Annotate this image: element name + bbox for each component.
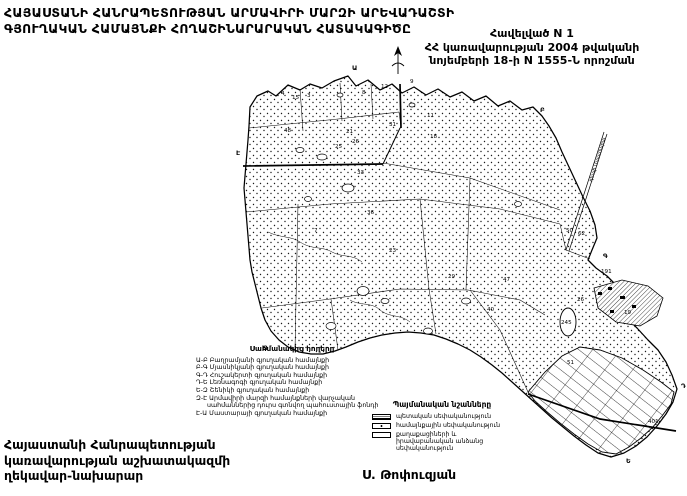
signer-name: Ս. Թոփուզյան [362, 467, 456, 482]
boundary-letter: Ա [352, 64, 357, 72]
boundary-letter: Ե [626, 457, 631, 465]
parcel-number: 36 [367, 210, 375, 216]
parcel-number: 48 [284, 128, 292, 134]
org-line3: ղեկավար-նախարար [4, 468, 230, 484]
parcel-number: 33 [357, 170, 365, 176]
border-item: Գ-Դ Հուշակերտի գյուղական համայնքի [196, 372, 388, 380]
parcel-number: 25 [335, 144, 343, 150]
legend-sign-label: պետական սեփականություն [396, 413, 491, 420]
appendix-line3: նոյեմբերի 18-ի N 1555-Ն որոշման [382, 54, 682, 68]
legend-sign-row: համայնքային սեփականություն [372, 422, 512, 429]
legend-conventional-signs: Պայմանական նշանները պետական սեփականությո… [372, 401, 512, 454]
org-line1: Հայաստանի Հանրապետության [4, 437, 230, 453]
community-property-swatch [372, 423, 391, 429]
parcel-number: 8 [362, 90, 366, 96]
legend-sign-row: քաղաքացիների և իրավաբանական անձանց սեփակ… [372, 431, 512, 452]
appendix-note: Հավելված N 1 ՀՀ կառավարության 2004 թվակա… [382, 27, 682, 68]
parcel-number: 11 [427, 113, 435, 119]
land-use-map: դեպի Մաստարա 245 41538129482131261118253… [0, 0, 687, 496]
appendix-line1: Հավելված N 1 [382, 27, 682, 41]
parcel-number: 31 [389, 122, 397, 128]
parcel-number: 19 [624, 310, 632, 316]
boundary-letter: Գ [603, 252, 608, 260]
signature-block: Հայաստանի Հանրապետության կառավարության ա… [4, 437, 230, 484]
parcel-number: 62 [578, 231, 585, 237]
border-item: Զ-Է Արմավիրի մարզի համայնքների վարչական [196, 395, 388, 403]
legend-signs-title: Պայմանական նշանները [372, 401, 512, 408]
state-property-swatch [372, 414, 391, 420]
parcel-number: 26 [577, 297, 585, 303]
legend-sign-row: պետական սեփականություն [372, 413, 512, 420]
legend-sign-label: համայնքային սեփականություն [396, 422, 500, 429]
parcel-number: 23 [389, 248, 397, 254]
parcel-number: 191 [601, 269, 612, 275]
parcel-number: 51 [567, 360, 575, 366]
legend-bordering-lands: Սահմանակից հողերը Ա-Բ Բաղրամյանի գյուղակ… [196, 345, 388, 417]
parcel-number: 26 [352, 139, 360, 145]
boundary-letter: Դ [681, 382, 686, 390]
parcel-number: 47 [503, 277, 511, 283]
boundary-letter: Բ [540, 106, 545, 114]
border-item: Է-Ա Մաստարայի գյուղական համայնքի [196, 410, 388, 418]
parcel-number: 50 [566, 228, 574, 234]
border-item: Դ-Ե Լեռնագոգի գյուղական համայնքի [196, 379, 388, 387]
parcel-number: 21 [346, 129, 354, 135]
parcel-number: 40 [487, 307, 495, 313]
legend-bordering-title: Սահմանակից հողերը [196, 345, 388, 353]
parcel-number: 15 [292, 95, 300, 101]
border-item: Ե-Զ Շենիկի գյուղական համայնքի [196, 387, 388, 395]
parcel-number: 4 [281, 91, 285, 97]
parcel-number: 401 [648, 419, 659, 425]
border-item-continuation: սահմաններից դուրս գտնվող պահուստային ֆոն… [196, 402, 388, 410]
org-line2: կառավարության աշխատակազմի [4, 453, 230, 469]
parcel-number: 18 [430, 134, 438, 140]
parcel-number: 3 [307, 93, 311, 99]
appendix-line2: ՀՀ կառավարության 2004 թվականի [382, 41, 682, 55]
parcel-number: 12 [381, 84, 388, 90]
border-item: Ա-Բ Բաղրամյանի գյուղական համայնքի [196, 357, 388, 365]
parcel-number: 7 [314, 228, 318, 234]
private-property-swatch [372, 432, 391, 438]
page-title-line1: ՀԱՅԱՍՏԱՆԻ ՀԱՆՐԱՊԵՏՈՒԹՅԱՆ ԱՐՄԱՎԻՐԻ ՄԱՐԶԻ … [4, 5, 454, 21]
parcel-number: 9 [410, 79, 414, 85]
border-item: Բ-Գ Մյասնիկյանի գյուղական համայնքի [196, 364, 388, 372]
road-label: դեպի Մաստարա [588, 137, 607, 183]
legend-sign-label: քաղաքացիների և իրավաբանական անձանց սեփակ… [396, 431, 504, 452]
parcel-number: 29 [448, 274, 456, 280]
oval-parcel-number: 245 [561, 320, 572, 326]
boundary-letter: Է [236, 149, 241, 157]
